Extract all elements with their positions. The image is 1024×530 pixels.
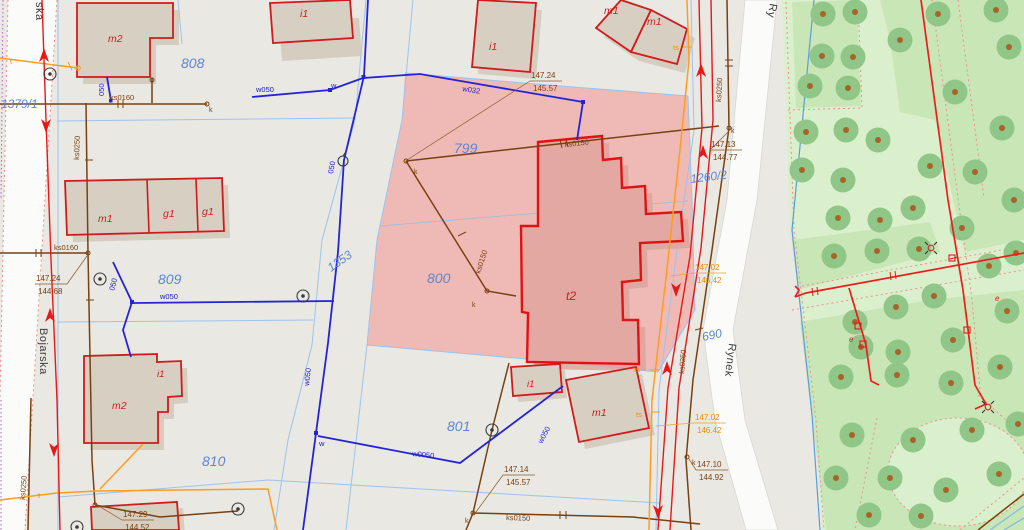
parcel-label-808: 808 bbox=[181, 55, 205, 71]
tree-trunk-dot bbox=[799, 167, 805, 173]
elevation-top: 147.24 bbox=[531, 71, 556, 80]
parcel-label-809: 809 bbox=[158, 271, 182, 287]
tree-trunk-dot bbox=[1015, 421, 1021, 427]
tree-trunk-dot bbox=[807, 83, 813, 89]
sewer-label: ks0250 bbox=[72, 136, 82, 160]
tree-trunk-dot bbox=[874, 248, 880, 254]
building-label-t2: t2 bbox=[566, 289, 576, 303]
building-label-g1-w1: g1 bbox=[163, 208, 175, 220]
tree-trunk-dot bbox=[952, 89, 958, 95]
sewer-label: ks0160 bbox=[110, 93, 134, 102]
tree-trunk-dot bbox=[910, 437, 916, 443]
building-i1-n bbox=[270, 0, 353, 43]
tree-trunk-dot bbox=[986, 263, 992, 269]
power-label: e bbox=[849, 335, 854, 344]
power-label: e bbox=[995, 294, 1000, 303]
water-label: w050 bbox=[159, 292, 178, 301]
parcel-label-1379-1: 1379/1 bbox=[1, 97, 38, 111]
building-label-m1-w: m1 bbox=[98, 213, 113, 225]
tree-trunk-dot bbox=[835, 215, 841, 221]
water-node-label: w bbox=[330, 81, 337, 90]
street-label-bojarska: Bojarska bbox=[37, 328, 49, 375]
parcel-label-799: 799 bbox=[454, 140, 478, 156]
cadastral-map: 147.24 145.57 147.13 144.77 147.24 144.6… bbox=[0, 0, 1024, 530]
telecom-label: ts bbox=[636, 410, 642, 419]
tree-trunk-dot bbox=[850, 54, 856, 60]
telecom-label: ts bbox=[673, 43, 679, 52]
building-label-i1-sw: i1 bbox=[157, 369, 164, 380]
tree-trunk-dot bbox=[845, 85, 851, 91]
building-label-m2-sw: m2 bbox=[112, 400, 127, 412]
tree-trunk-dot bbox=[893, 304, 899, 310]
tree-trunk-dot bbox=[852, 9, 858, 15]
tree-trunk-dot bbox=[887, 475, 893, 481]
tree-trunk-dot bbox=[820, 11, 826, 17]
parcel-label-810: 810 bbox=[202, 453, 226, 469]
tree-trunk-dot bbox=[840, 177, 846, 183]
elevation-top: 147.13 bbox=[711, 140, 736, 149]
elevation-bottom: 144.77 bbox=[713, 153, 738, 162]
building-i1-s bbox=[511, 364, 562, 396]
tree-trunk-dot bbox=[866, 512, 872, 518]
sewer-node-label: k bbox=[209, 107, 213, 114]
elevation-bottom: 144.52 bbox=[125, 523, 150, 530]
tree-trunk-dot bbox=[996, 471, 1002, 477]
sewer-label: ks0250 bbox=[18, 475, 29, 500]
building-label-m1-ne-1: m1 bbox=[604, 5, 619, 17]
sewer-label: ks0150 bbox=[506, 513, 530, 523]
cadastral-map-viewport[interactable]: 147.24 145.57 147.13 144.77 147.24 144.6… bbox=[0, 0, 1024, 530]
tree-trunk-dot bbox=[950, 337, 956, 343]
tree-trunk-dot bbox=[843, 127, 849, 133]
parcel-label-801: 801 bbox=[447, 418, 470, 434]
tree-trunk-dot bbox=[803, 129, 809, 135]
sewer-node-label: k bbox=[414, 169, 418, 176]
sewer-node-label: k bbox=[692, 460, 696, 467]
building-label-m1-ne-2: m1 bbox=[647, 16, 662, 28]
tree-trunk-dot bbox=[910, 205, 916, 211]
building-row-m1-g1 bbox=[65, 178, 224, 235]
sewer-node-label: k bbox=[465, 518, 469, 525]
telecom-label: ts bbox=[634, 365, 640, 374]
tree-trunk-dot bbox=[918, 513, 924, 519]
tree-trunk-dot bbox=[897, 37, 903, 43]
elevation-top: 147.29 bbox=[123, 510, 148, 519]
building-label-g1-w2: g1 bbox=[202, 206, 214, 218]
sewer-node-label: k bbox=[731, 128, 735, 135]
building-i1-nc bbox=[472, 0, 536, 72]
elevation-bottom: 146.42 bbox=[697, 426, 722, 435]
building-label-m1-s: m1 bbox=[592, 407, 607, 419]
building-m1-s bbox=[566, 367, 649, 442]
water-label: w050 bbox=[255, 85, 274, 94]
tree-trunk-dot bbox=[969, 427, 975, 433]
tree-trunk-dot bbox=[999, 125, 1005, 131]
building-label-i1-nc: i1 bbox=[489, 41, 497, 53]
elevation-bottom: 146.42 bbox=[697, 276, 722, 285]
tree-trunk-dot bbox=[895, 349, 901, 355]
tree-trunk-dot bbox=[875, 137, 881, 143]
water-node-label: w bbox=[318, 439, 325, 448]
sewer-label: ks0250 bbox=[714, 77, 724, 102]
tree-trunk-dot bbox=[894, 372, 900, 378]
tree-trunk-dot bbox=[948, 380, 954, 386]
elevation-top: 147.02 bbox=[695, 263, 720, 272]
tree-trunk-dot bbox=[935, 11, 941, 17]
elevation-top: 147.24 bbox=[36, 274, 61, 283]
building-label-i1-s: i1 bbox=[527, 379, 534, 390]
tree-trunk-dot bbox=[1011, 197, 1017, 203]
elevation-top: 147.14 bbox=[504, 465, 529, 474]
tree-trunk-dot bbox=[916, 246, 922, 252]
tree-trunk-dot bbox=[838, 374, 844, 380]
tree-trunk-dot bbox=[819, 53, 825, 59]
tree-trunk-dot bbox=[943, 487, 949, 493]
parcel-label-800: 800 bbox=[427, 270, 451, 286]
elevation-bottom: 144.68 bbox=[38, 287, 63, 296]
sewer-node-label: k bbox=[472, 302, 476, 309]
tree-trunk-dot bbox=[831, 253, 837, 259]
building-label-m2-nw: m2 bbox=[108, 33, 123, 45]
tree-trunk-dot bbox=[927, 163, 933, 169]
park bbox=[782, 0, 1024, 530]
elevation-bottom: 144.92 bbox=[699, 473, 724, 482]
tree-trunk-dot bbox=[1006, 44, 1012, 50]
elevation-bottom: 145.57 bbox=[533, 84, 558, 93]
building-label-i1-n: i1 bbox=[300, 8, 308, 20]
elevation-top: 147.02 bbox=[695, 413, 720, 422]
tree-trunk-dot bbox=[849, 432, 855, 438]
elevation-bottom: 145.57 bbox=[506, 478, 531, 487]
tree-trunk-dot bbox=[877, 217, 883, 223]
elevation-top: 147.10 bbox=[697, 460, 722, 469]
street-label-bojarska-fragment: ska bbox=[33, 2, 45, 21]
tree-trunk-dot bbox=[833, 475, 839, 481]
tree-trunk-dot bbox=[931, 293, 937, 299]
sewer-label: ks0160 bbox=[54, 243, 78, 252]
tree-trunk-dot bbox=[959, 225, 965, 231]
tree-trunk-dot bbox=[1004, 308, 1010, 314]
tree-trunk-dot bbox=[993, 7, 999, 13]
water-label: 050 bbox=[97, 83, 106, 96]
tree-trunk-dot bbox=[997, 364, 1003, 370]
street-label-rynek-fragment: Ry bbox=[765, 2, 779, 18]
tree-trunk-dot bbox=[972, 169, 978, 175]
